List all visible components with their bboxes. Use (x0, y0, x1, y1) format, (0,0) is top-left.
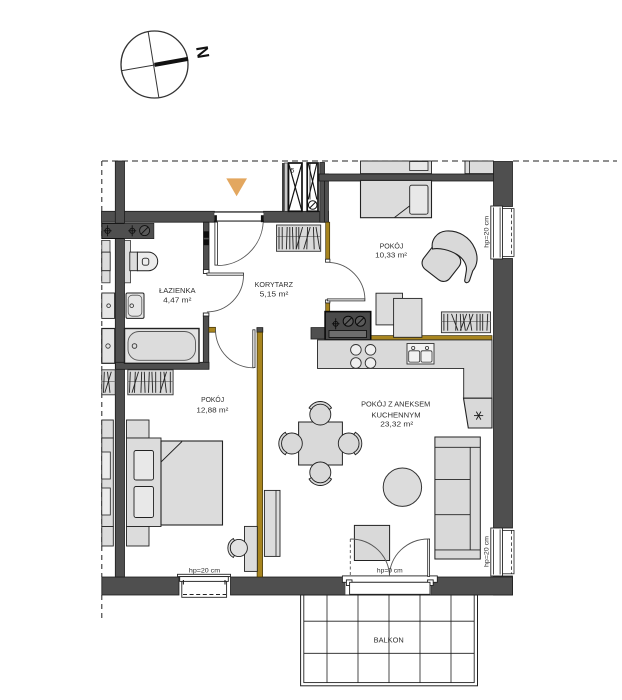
svg-text:10,33 m²: 10,33 m² (375, 250, 407, 259)
svg-text:hp=20 cm: hp=20 cm (189, 568, 221, 575)
svg-text:5,15 m²: 5,15 m² (260, 290, 289, 299)
svg-text:POKÓJ: POKÓJ (201, 395, 224, 404)
svg-text:ŁAZIENKA: ŁAZIENKA (159, 286, 196, 295)
svg-text:KORYTARZ: KORYTARZ (255, 280, 294, 289)
svg-text:23,32 m²: 23,32 m² (380, 420, 413, 429)
svg-text:hp=20 cm: hp=20 cm (483, 535, 490, 567)
svg-text:KUCHENNYM: KUCHENNYM (371, 411, 420, 420)
svg-text:5: 5 (291, 168, 295, 175)
svg-text:4,47 m²: 4,47 m² (163, 296, 192, 305)
svg-text:POKÓJ Z ANEKSEM: POKÓJ Z ANEKSEM (361, 400, 430, 409)
svg-text:12,88 m²: 12,88 m² (196, 405, 229, 414)
svg-text:BALKON: BALKON (374, 635, 404, 644)
svg-text:hp=0 cm: hp=0 cm (377, 568, 403, 575)
svg-text:POKÓJ: POKÓJ (380, 242, 404, 251)
svg-text:hp=20 cm: hp=20 cm (483, 215, 490, 248)
